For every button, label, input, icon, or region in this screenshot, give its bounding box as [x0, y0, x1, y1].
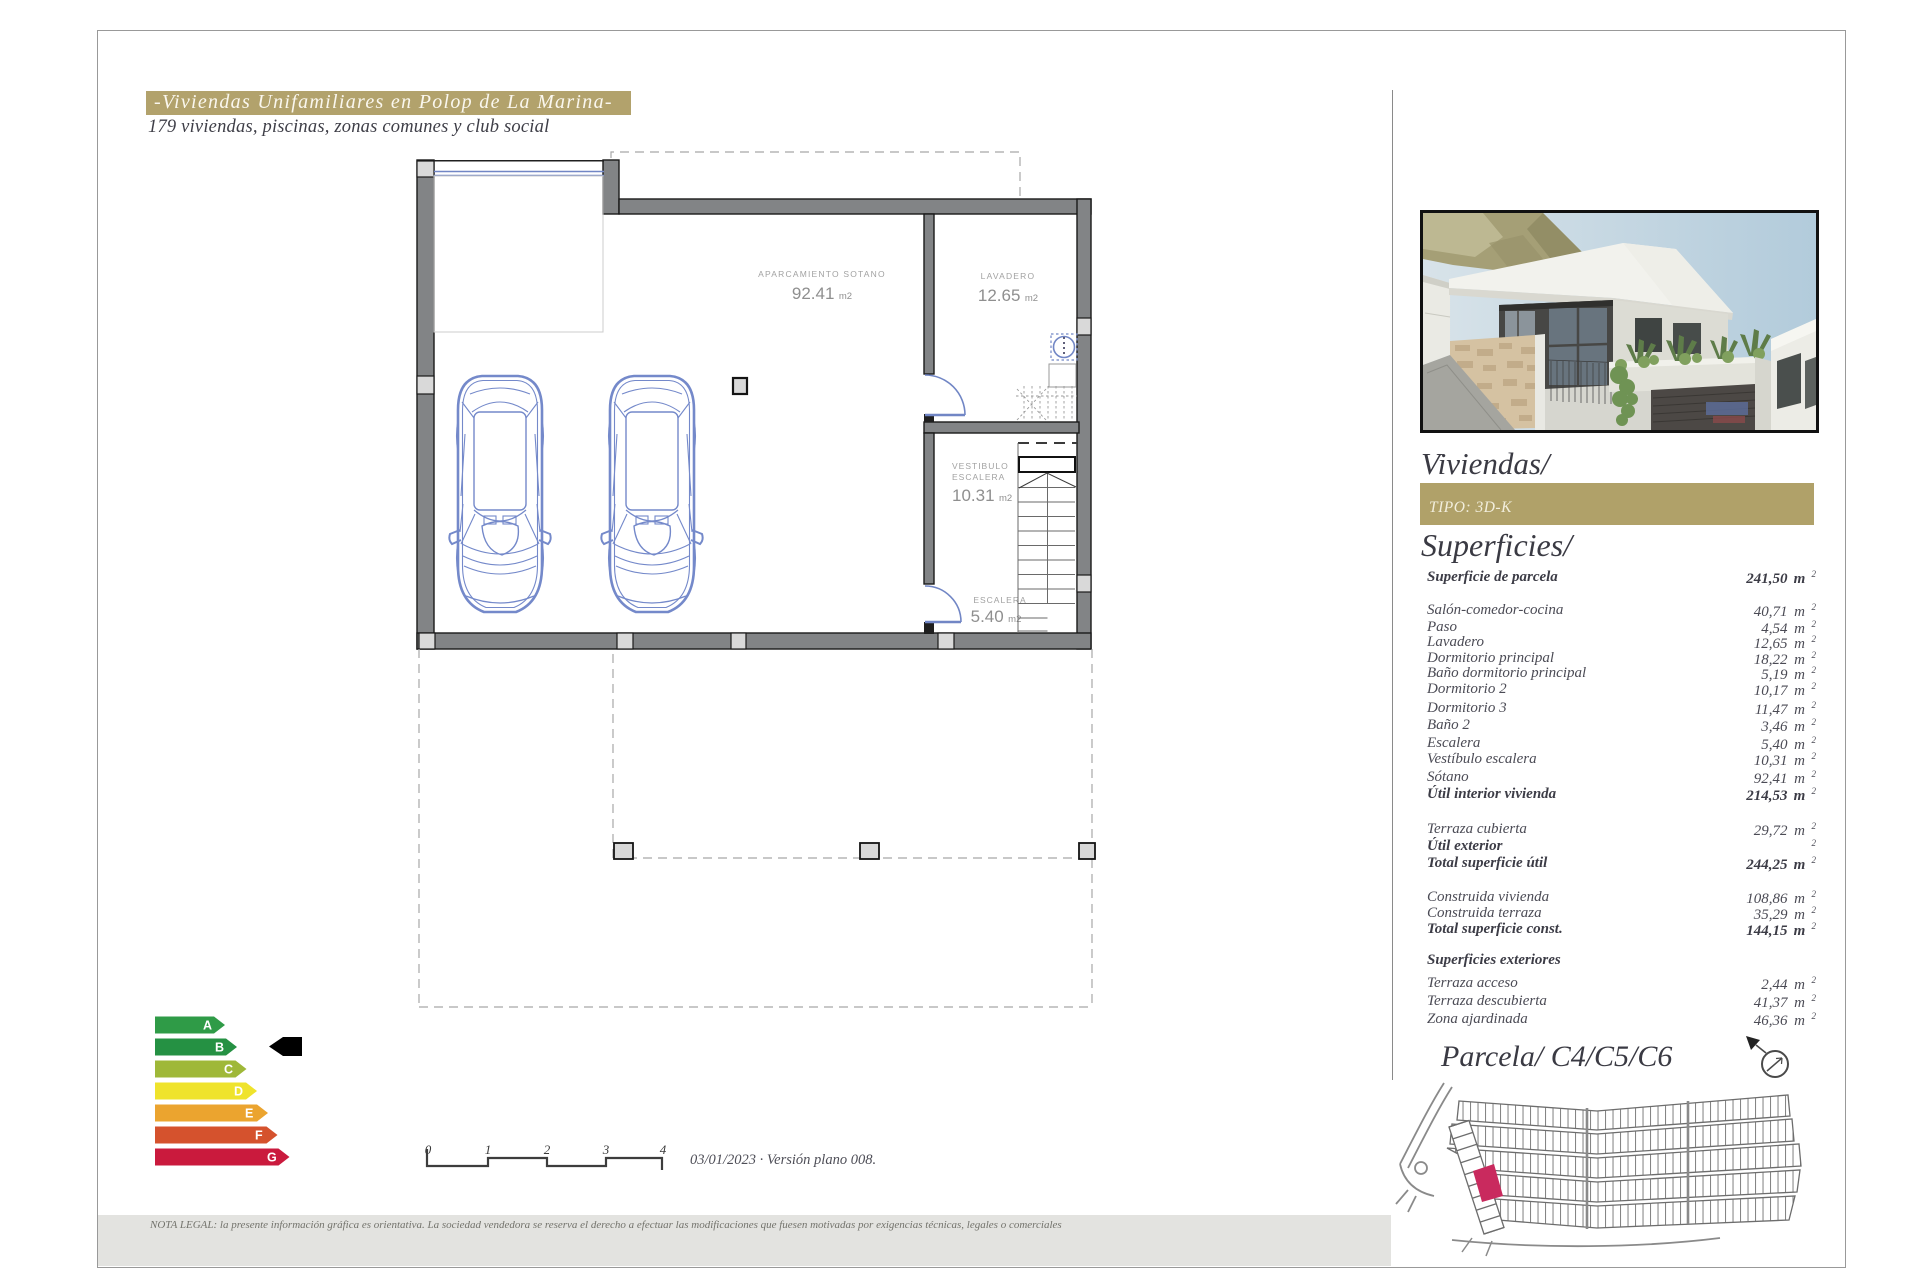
svg-text:D: D: [234, 1085, 243, 1099]
svg-text:A: A: [203, 1019, 212, 1033]
svg-text:1: 1: [485, 1142, 492, 1157]
svg-text:E: E: [245, 1107, 253, 1121]
svg-text:4: 4: [660, 1142, 667, 1157]
svg-text:3: 3: [602, 1142, 610, 1157]
svg-text:G: G: [267, 1151, 277, 1165]
svg-text:B: B: [215, 1041, 224, 1055]
svg-text:2: 2: [544, 1142, 551, 1157]
svg-text:C: C: [224, 1063, 233, 1077]
svg-text:0: 0: [425, 1142, 432, 1157]
svg-text:F: F: [255, 1129, 263, 1143]
